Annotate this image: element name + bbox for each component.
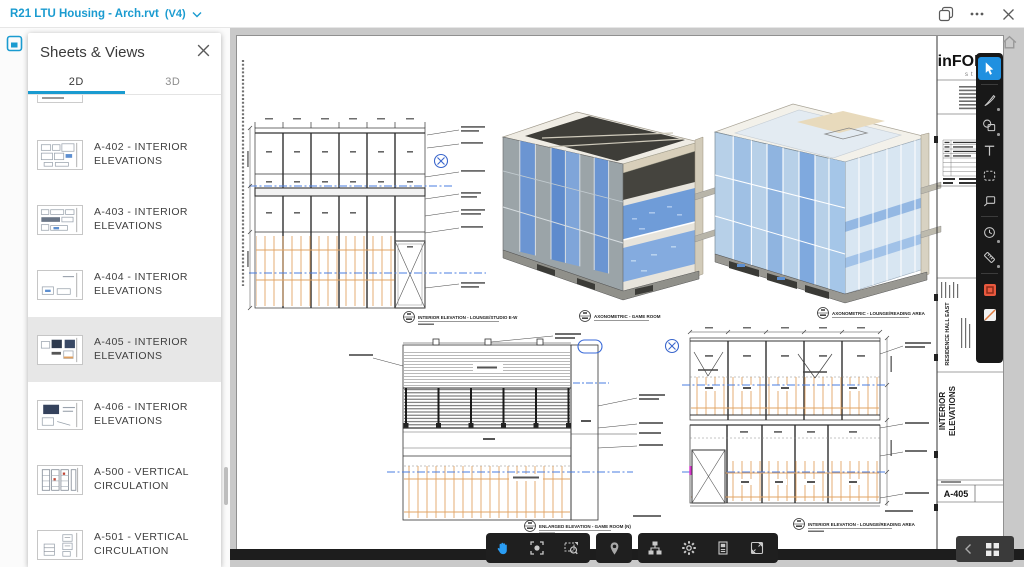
panel-tabs: 2D 3D bbox=[28, 69, 221, 95]
callout-tool-button[interactable] bbox=[978, 189, 1001, 212]
sheet-thumbnail bbox=[37, 140, 83, 170]
sheet-title-line1: INTERIOR bbox=[938, 392, 947, 430]
sheet-number: A-405 bbox=[944, 489, 969, 499]
view-axonometric-lounge-reading bbox=[715, 104, 941, 303]
toolbar-divider bbox=[981, 84, 998, 85]
sheet-item-label: A-404 - INTERIOR ELEVATIONS bbox=[94, 271, 216, 299]
properties-button[interactable] bbox=[706, 533, 740, 563]
caption-axonometric-lounge-reading: AXONOMETRIC - LOUNGE/READING AREA bbox=[818, 308, 926, 319]
model-browser-button[interactable] bbox=[638, 533, 672, 563]
sheet-item-label: A-500 - VERTICAL CIRCULATION bbox=[94, 466, 216, 494]
sheet-thumbnail-partial bbox=[37, 95, 83, 103]
caption-enlarged-elevation-game-room: ENLARGED ELEVATION - GAME ROOM (N) bbox=[525, 521, 632, 535]
sheet-item-a403[interactable]: A-403 - INTERIOR ELEVATIONS bbox=[28, 187, 221, 252]
view-axonometric-game-room bbox=[503, 112, 717, 300]
active-tab-indicator bbox=[28, 91, 125, 94]
tools-toolbar bbox=[638, 533, 778, 563]
view-enlarged-elevation-game-room bbox=[349, 333, 665, 520]
navigation-toolbar bbox=[486, 533, 590, 563]
fit-view-icon bbox=[529, 540, 545, 556]
toolbar-divider bbox=[981, 273, 998, 274]
more-options-icon[interactable] bbox=[969, 6, 985, 22]
toolbar-divider bbox=[981, 216, 998, 217]
view-interior-elevation-lounge-studio bbox=[247, 118, 486, 310]
text-tool-button[interactable] bbox=[978, 139, 1001, 162]
pen-icon bbox=[982, 93, 997, 108]
measure-tool-button[interactable] bbox=[978, 246, 1001, 269]
settings-button[interactable] bbox=[672, 533, 706, 563]
hierarchy-icon bbox=[647, 540, 663, 556]
caption-interior-elevation-lounge-reading: INTERIOR ELEVATION - LOUNGE/READING AREA bbox=[794, 519, 916, 533]
shapes-tool-button[interactable] bbox=[978, 114, 1001, 137]
compare-versions-icon[interactable] bbox=[938, 6, 954, 22]
sheets-views-panel: Sheets & Views 2D 3D bbox=[28, 33, 221, 567]
panel-scrollbar[interactable] bbox=[224, 467, 228, 505]
caption-interior-elevation-lounge-studio: INTERIOR ELEVATION - LOUNGE/STUDIO E-W bbox=[404, 312, 519, 326]
sheet-item-a404[interactable]: A-404 - INTERIOR ELEVATIONS bbox=[28, 252, 221, 317]
sheet-graphics: INTERIOR ELEVATION - LOUNGE/STUDIO E-W bbox=[237, 36, 1003, 549]
tab-3d[interactable]: 3D bbox=[125, 69, 222, 94]
sheet-thumbnail bbox=[37, 530, 83, 560]
ruler-icon bbox=[982, 250, 997, 265]
viewer-app: INTERIOR ELEVATION - LOUNGE/STUDIO E-W bbox=[0, 0, 1024, 567]
grid-views-icon[interactable] bbox=[986, 543, 999, 556]
shapes-icon bbox=[982, 118, 997, 133]
caption-text: INTERIOR ELEVATION - LOUNGE/STUDIO E-W bbox=[418, 315, 518, 320]
sheet-item-label: A-406 - INTERIOR ELEVATIONS bbox=[94, 401, 216, 429]
caption-axonometric-game-room: AXONOMETRIC - GAME ROOM bbox=[580, 311, 661, 322]
sheet-item-label: A-402 - INTERIOR ELEVATIONS bbox=[94, 141, 216, 169]
document-title-dropdown[interactable]: R21 LTU Housing - Arch.rvt (V4) bbox=[10, 0, 202, 28]
project-name: RESIDENCE HALL EAST bbox=[945, 302, 951, 366]
hand-icon bbox=[495, 540, 511, 556]
viewer-canvas[interactable]: INTERIOR ELEVATION - LOUNGE/STUDIO E-W bbox=[230, 28, 1024, 567]
flyout-dot bbox=[997, 265, 1000, 268]
properties-panel-icon bbox=[715, 540, 731, 556]
dashed-box-icon bbox=[982, 168, 997, 183]
markup-toolbar bbox=[976, 53, 1003, 363]
panel-title: Sheets & Views bbox=[40, 44, 145, 61]
caption-text: AXONOMETRIC - LOUNGE/READING AREA bbox=[832, 311, 926, 316]
flyout-dot bbox=[997, 133, 1000, 136]
sheet-item-a500[interactable]: A-500 - VERTICAL CIRCULATION bbox=[28, 447, 221, 512]
clock-icon bbox=[982, 225, 997, 240]
location-pin-icon bbox=[607, 540, 622, 557]
stroke-color-swatch[interactable] bbox=[978, 278, 1001, 301]
sheets-panel-toggle-icon[interactable] bbox=[6, 35, 24, 53]
titlebar-actions bbox=[938, 0, 1016, 28]
sheet-item-a405[interactable]: A-405 - INTERIOR ELEVATIONS bbox=[28, 317, 221, 382]
sheet-item-label: A-405 - INTERIOR ELEVATIONS bbox=[94, 336, 216, 364]
left-rail: Sheets & Views 2D 3D bbox=[0, 28, 230, 567]
fullscreen-button[interactable] bbox=[740, 533, 774, 563]
chevron-down-icon bbox=[192, 11, 202, 18]
caption-text: AXONOMETRIC - GAME ROOM bbox=[594, 314, 661, 319]
fit-to-view-button[interactable] bbox=[520, 533, 554, 563]
fill-color-swatch[interactable] bbox=[978, 303, 1001, 326]
document-version: (V4) bbox=[165, 8, 186, 20]
titlebar: R21 LTU Housing - Arch.rvt (V4) bbox=[0, 0, 1024, 28]
document-title-text: R21 LTU Housing - Arch.rvt bbox=[10, 8, 159, 20]
sheet-item-a402[interactable]: A-402 - INTERIOR ELEVATIONS bbox=[28, 122, 221, 187]
draw-tool-button[interactable] bbox=[978, 89, 1001, 112]
home-icon[interactable] bbox=[1001, 34, 1018, 51]
zoom-window-button[interactable] bbox=[554, 533, 588, 563]
gear-icon bbox=[681, 540, 697, 556]
views-widget bbox=[956, 536, 1014, 562]
caption-text: ENLARGED ELEVATION - GAME ROOM (N) bbox=[539, 524, 631, 529]
callout-icon bbox=[982, 193, 997, 208]
pan-tool-button[interactable] bbox=[486, 533, 520, 563]
first-person-button[interactable] bbox=[597, 533, 631, 563]
sheet-thumbnail bbox=[37, 465, 83, 495]
sheet-thumbnail bbox=[37, 205, 83, 235]
sheet-item-a501[interactable]: A-501 - VERTICAL CIRCULATION bbox=[28, 512, 221, 566]
drawing-sheet: INTERIOR ELEVATION - LOUNGE/STUDIO E-W bbox=[237, 36, 1003, 549]
close-icon[interactable] bbox=[1000, 6, 1016, 22]
flyout-dot bbox=[997, 108, 1000, 111]
no-fill-swatch-icon bbox=[982, 307, 998, 323]
sheet-thumbnail bbox=[37, 400, 83, 430]
zoom-window-icon bbox=[563, 540, 579, 556]
sheet-title-line2: ELEVATIONS bbox=[948, 385, 957, 436]
caption-text: INTERIOR ELEVATION - LOUNGE/READING AREA bbox=[808, 522, 916, 527]
panel-header: Sheets & Views bbox=[28, 33, 221, 69]
select-tool-button[interactable] bbox=[978, 57, 1001, 80]
marquee-tool-button[interactable] bbox=[978, 164, 1001, 187]
sheet-thumbnail bbox=[37, 270, 83, 300]
sheet-item-label: A-403 - INTERIOR ELEVATIONS bbox=[94, 206, 216, 234]
panel-close-icon[interactable] bbox=[196, 43, 211, 58]
text-icon bbox=[982, 143, 997, 158]
sheet-list: A-402 - INTERIOR ELEVATIONS A-403 - INTE… bbox=[28, 95, 221, 566]
flyout-dot bbox=[997, 240, 1000, 243]
sheet-item-label: A-501 - VERTICAL CIRCULATION bbox=[94, 531, 216, 559]
stamp-tool-button[interactable] bbox=[978, 221, 1001, 244]
color-swatch-icon bbox=[982, 282, 998, 298]
sheet-item-a406[interactable]: A-406 - INTERIOR ELEVATIONS bbox=[28, 382, 221, 447]
sheet-thumbnail bbox=[37, 335, 83, 365]
fullscreen-icon bbox=[749, 540, 765, 556]
view-interior-elevation-lounge-reading bbox=[666, 327, 932, 512]
first-person-toolbar bbox=[596, 533, 632, 563]
collapse-chevron-icon[interactable] bbox=[964, 543, 972, 555]
cursor-icon bbox=[982, 61, 997, 76]
